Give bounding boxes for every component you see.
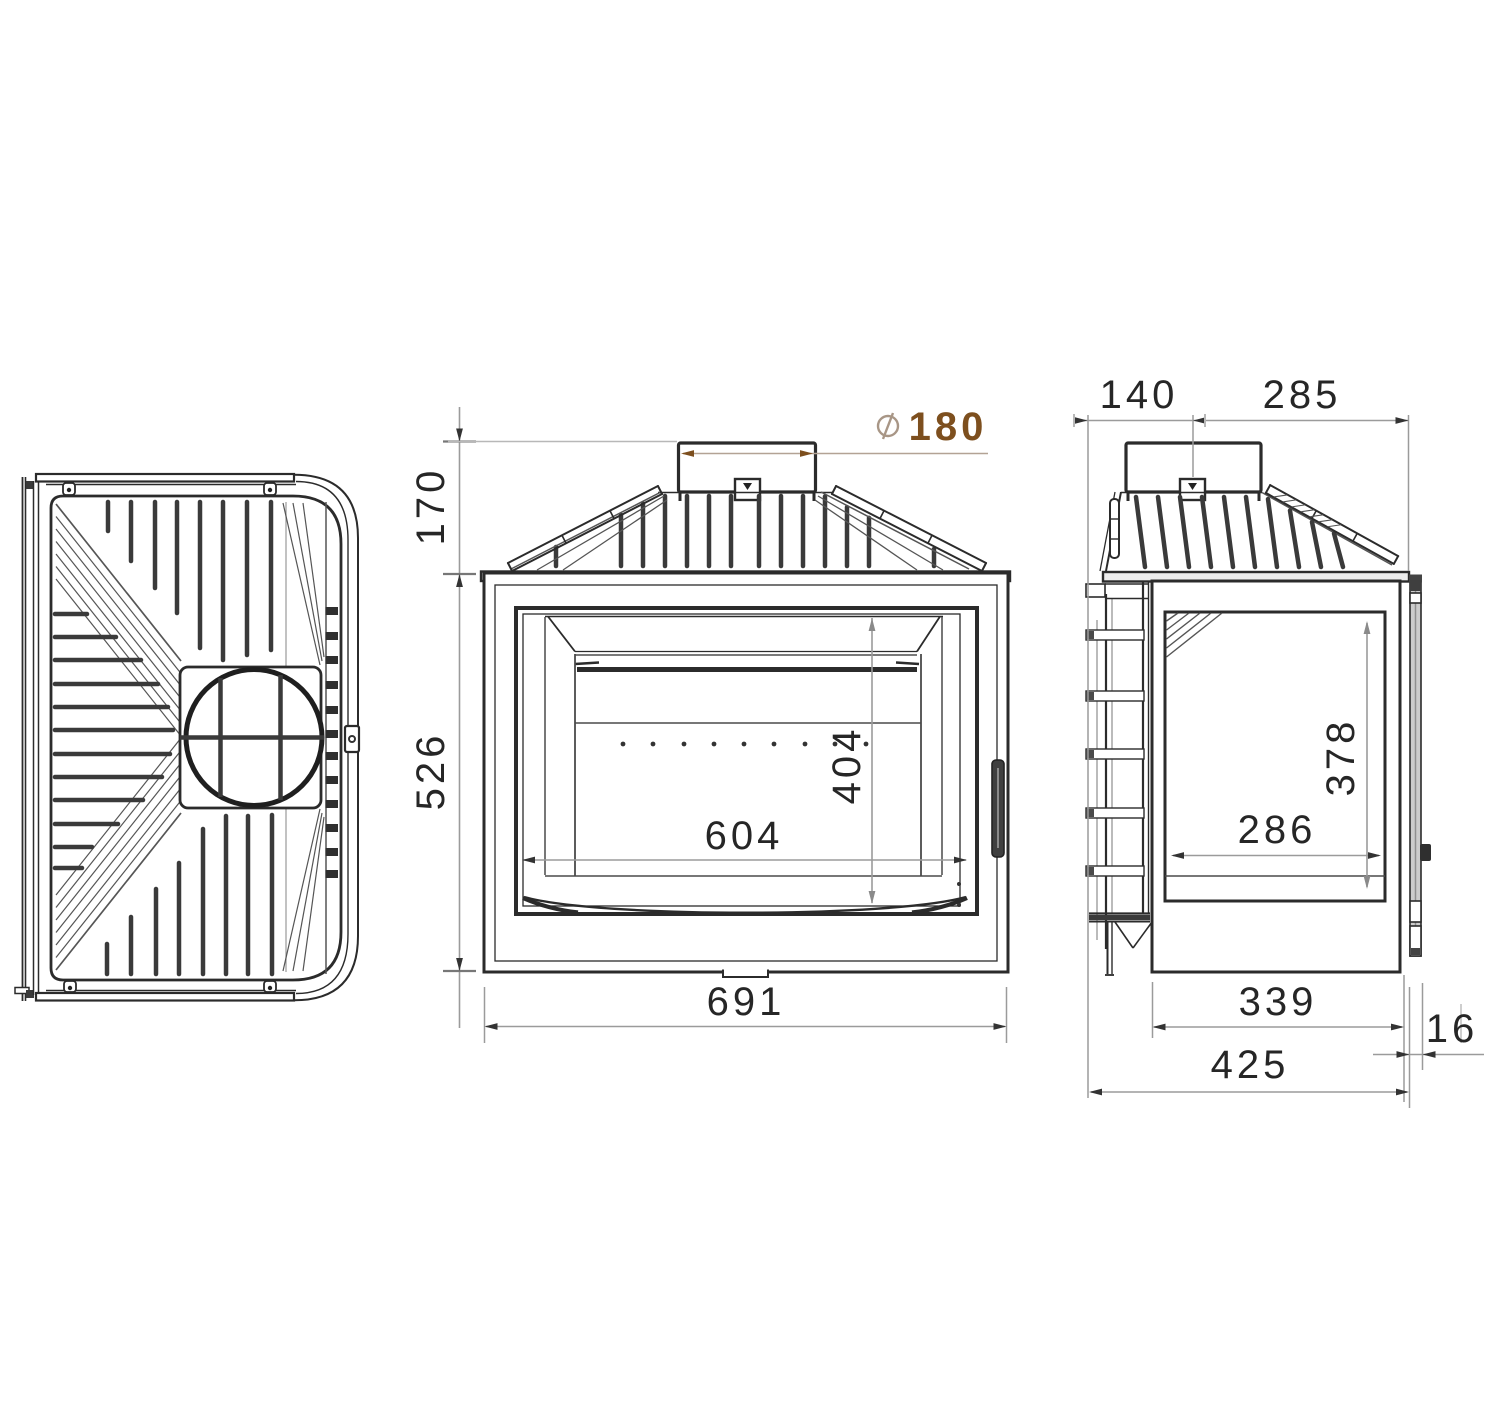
- svg-text:285: 285: [1263, 373, 1342, 417]
- svg-text:378: 378: [1319, 718, 1363, 797]
- svg-text:140: 140: [1100, 373, 1179, 417]
- svg-text:604: 604: [705, 814, 784, 858]
- svg-text:404: 404: [825, 726, 869, 805]
- svg-text:339: 339: [1239, 980, 1318, 1024]
- svg-text:691: 691: [707, 980, 786, 1024]
- svg-text:286: 286: [1238, 808, 1317, 852]
- svg-text:16: 16: [1426, 1007, 1479, 1051]
- svg-text:526: 526: [409, 732, 453, 811]
- svg-text:180: 180: [909, 405, 988, 449]
- svg-text:425: 425: [1211, 1043, 1290, 1087]
- svg-text:170: 170: [409, 467, 453, 546]
